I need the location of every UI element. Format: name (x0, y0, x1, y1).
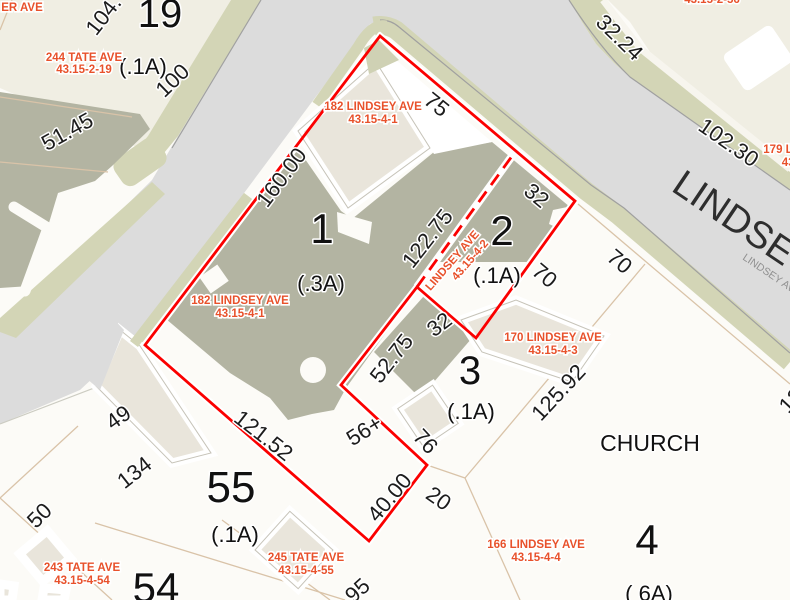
svg-text:(.1A): (.1A) (211, 522, 259, 547)
svg-text:2: 2 (490, 207, 513, 254)
svg-text:245 TATE AVE: 245 TATE AVE (268, 552, 345, 564)
svg-text:4: 4 (635, 516, 658, 563)
svg-text:3: 3 (459, 349, 481, 393)
svg-text:54: 54 (133, 564, 180, 600)
svg-text:243 TATE AVE: 243 TATE AVE (44, 562, 121, 574)
svg-text:182 LINDSEY AVE: 182 LINDSEY AVE (324, 101, 422, 113)
svg-text:ER AVE: ER AVE (1, 2, 43, 14)
svg-text:55: 55 (207, 463, 256, 512)
svg-text:(.3A): (.3A) (297, 271, 345, 296)
svg-text:43.15-4-1: 43.15-4-1 (215, 308, 265, 320)
svg-text:182 LINDSEY AVE: 182 LINDSEY AVE (191, 295, 289, 307)
svg-text:43.15-4-55: 43.15-4-55 (278, 565, 334, 577)
svg-text:19: 19 (138, 0, 183, 36)
svg-text:43.1: 43.1 (782, 157, 790, 169)
svg-text:43.15-4-54: 43.15-4-54 (54, 575, 110, 587)
svg-text:244 TATE AVE: 244 TATE AVE (46, 52, 123, 64)
svg-text:(.1A): (.1A) (473, 263, 521, 288)
svg-text:1: 1 (310, 205, 333, 252)
svg-text:43.15-2-19: 43.15-2-19 (56, 64, 112, 76)
svg-text:(.1A): (.1A) (447, 399, 495, 424)
svg-text:179 L: 179 L (763, 144, 790, 156)
svg-text:43.15-4-1: 43.15-4-1 (348, 114, 398, 126)
svg-text:( 6A): ( 6A) (625, 581, 673, 600)
svg-text:43.15-2-56: 43.15-2-56 (684, 0, 740, 6)
svg-text:166 LINDSEY AVE: 166 LINDSEY AVE (487, 539, 585, 551)
svg-text:43.15-4-3: 43.15-4-3 (528, 345, 577, 357)
svg-text:170 LINDSEY AVE: 170 LINDSEY AVE (504, 332, 602, 344)
svg-text:43.15-4-4: 43.15-4-4 (511, 552, 561, 564)
svg-text:(.1A): (.1A) (119, 54, 167, 79)
svg-text:CHURCH: CHURCH (600, 430, 700, 456)
